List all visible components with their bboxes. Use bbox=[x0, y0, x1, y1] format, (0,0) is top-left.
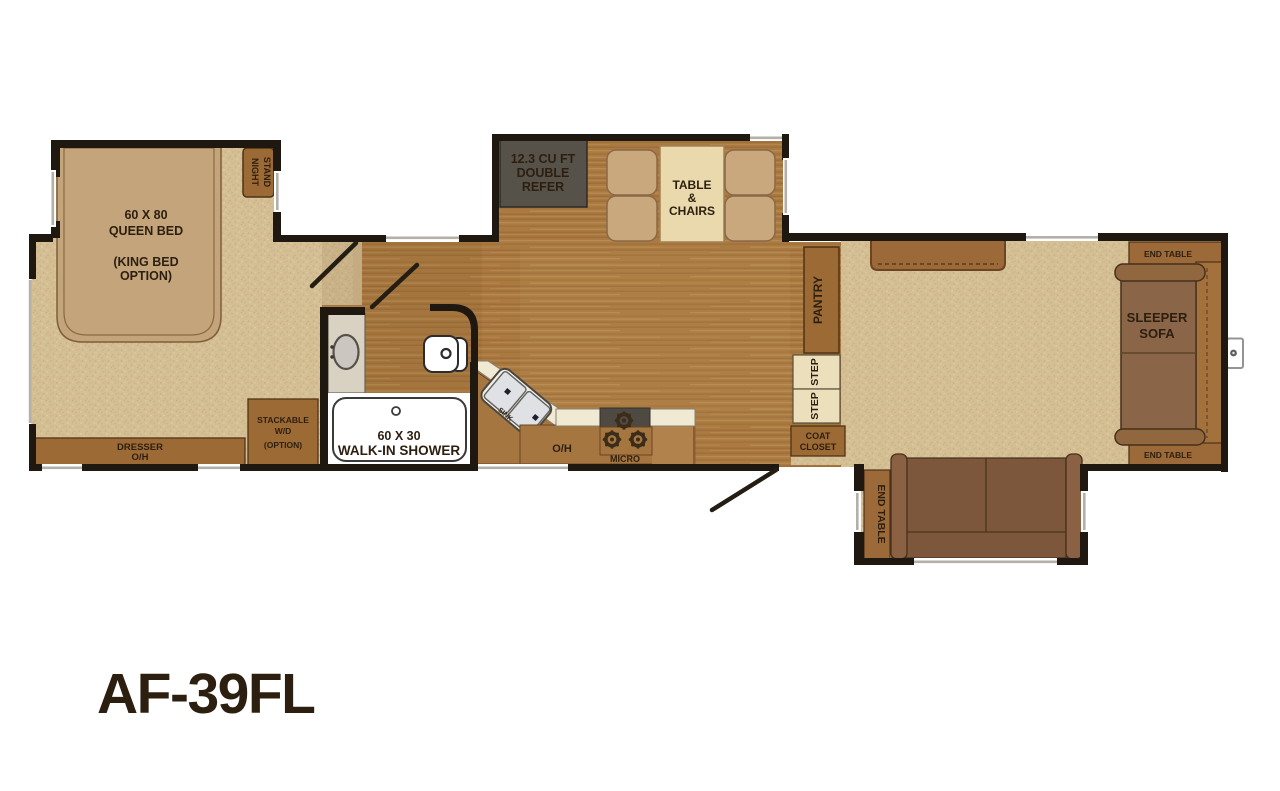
svg-text:60 X 30: 60 X 30 bbox=[377, 429, 420, 443]
svg-text:STEP: STEP bbox=[809, 392, 821, 419]
svg-text:TABLE: TABLE bbox=[672, 178, 711, 192]
svg-text:O/H: O/H bbox=[132, 452, 149, 463]
svg-text:SLEEPER: SLEEPER bbox=[1127, 310, 1188, 325]
svg-text:(KING BED: (KING BED bbox=[113, 255, 178, 269]
svg-text:O/H: O/H bbox=[552, 443, 572, 455]
svg-text:REFER: REFER bbox=[522, 180, 564, 194]
svg-text:END TABLE: END TABLE bbox=[1144, 249, 1192, 259]
svg-text:CHAIRS: CHAIRS bbox=[669, 204, 715, 218]
svg-text:STAND: STAND bbox=[262, 157, 272, 188]
svg-text:60 X 80: 60 X 80 bbox=[124, 208, 167, 222]
svg-text:AF-39FL: AF-39FL bbox=[97, 662, 315, 726]
svg-text:DOUBLE: DOUBLE bbox=[517, 166, 570, 180]
svg-text:&: & bbox=[688, 191, 697, 205]
svg-text:STEP: STEP bbox=[809, 358, 821, 385]
svg-text:WALK-IN SHOWER: WALK-IN SHOWER bbox=[338, 443, 460, 458]
svg-text:NIGHT: NIGHT bbox=[250, 158, 260, 187]
svg-text:QUEEN BED: QUEEN BED bbox=[109, 224, 183, 238]
svg-text:(OPTION): (OPTION) bbox=[264, 440, 302, 450]
svg-text:END TABLE: END TABLE bbox=[875, 484, 887, 543]
svg-text:MICRO: MICRO bbox=[610, 454, 640, 464]
svg-text:COAT: COAT bbox=[806, 431, 831, 441]
svg-text:12.3 CU FT: 12.3 CU FT bbox=[511, 152, 576, 166]
svg-text:CLOSET: CLOSET bbox=[800, 442, 837, 452]
svg-text:SOFA: SOFA bbox=[1139, 326, 1175, 341]
svg-text:STACKABLE: STACKABLE bbox=[257, 415, 309, 425]
svg-text:W/D: W/D bbox=[275, 426, 292, 436]
svg-text:PANTRY: PANTRY bbox=[811, 276, 825, 324]
svg-text:END TABLE: END TABLE bbox=[1144, 450, 1192, 460]
svg-text:OPTION): OPTION) bbox=[120, 269, 172, 283]
